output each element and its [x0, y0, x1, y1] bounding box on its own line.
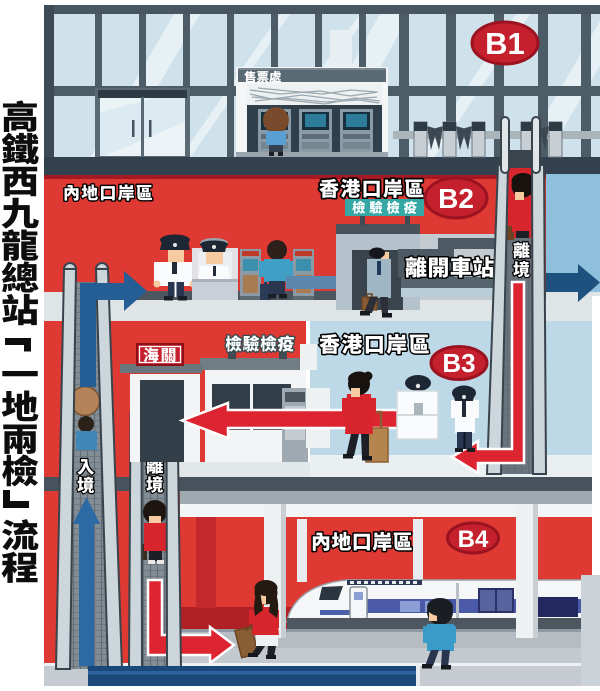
svg-text:B1: B1	[485, 26, 525, 61]
svg-text:B4: B4	[458, 526, 489, 553]
svg-text:B3: B3	[442, 348, 475, 378]
svg-text:B2: B2	[438, 183, 474, 214]
